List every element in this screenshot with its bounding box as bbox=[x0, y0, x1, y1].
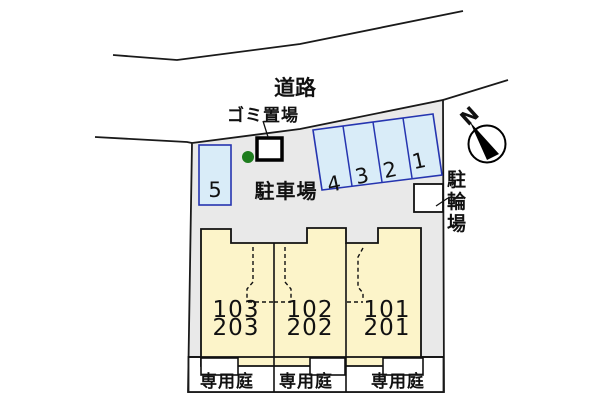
unit-label-101-201: 101 201 bbox=[347, 301, 427, 337]
bicycle-parking-area bbox=[414, 184, 443, 212]
road-lower-edge-line-right bbox=[443, 80, 508, 100]
road-upper-edge-line bbox=[113, 11, 463, 60]
bicycle-parking-label: 駐輪場 bbox=[447, 169, 469, 235]
parking-lot-label: 駐車場 bbox=[246, 175, 326, 204]
parking-number-3: 3 bbox=[349, 162, 376, 190]
parking-number-4: 4 bbox=[321, 170, 348, 198]
unit-202: 202 bbox=[270, 319, 350, 337]
road-label: 道路 bbox=[255, 72, 335, 102]
parking-number-5: 5 bbox=[204, 178, 226, 202]
unit-label-103-203: 103 203 bbox=[196, 301, 276, 337]
site-plan: 道路 ゴミ置場 駐車場 駐輪場 N 4 3 2 1 5 103 203 102 … bbox=[0, 0, 600, 400]
garden-label-3: 専用庭 bbox=[358, 373, 438, 392]
unit-label-102-202: 102 202 bbox=[270, 301, 350, 337]
green-dot bbox=[242, 151, 254, 163]
garbage-area-label: ゴミ置場 bbox=[222, 101, 304, 126]
road-lower-edge-line-left bbox=[95, 137, 192, 143]
unit-201: 201 bbox=[347, 319, 427, 337]
parking-number-1: 1 bbox=[406, 147, 433, 175]
garden-label-1: 専用庭 bbox=[187, 373, 267, 392]
parking-number-2: 2 bbox=[377, 156, 404, 184]
garden-label-2: 専用庭 bbox=[266, 373, 346, 392]
garbage-box bbox=[257, 138, 282, 160]
unit-203: 203 bbox=[196, 319, 276, 337]
